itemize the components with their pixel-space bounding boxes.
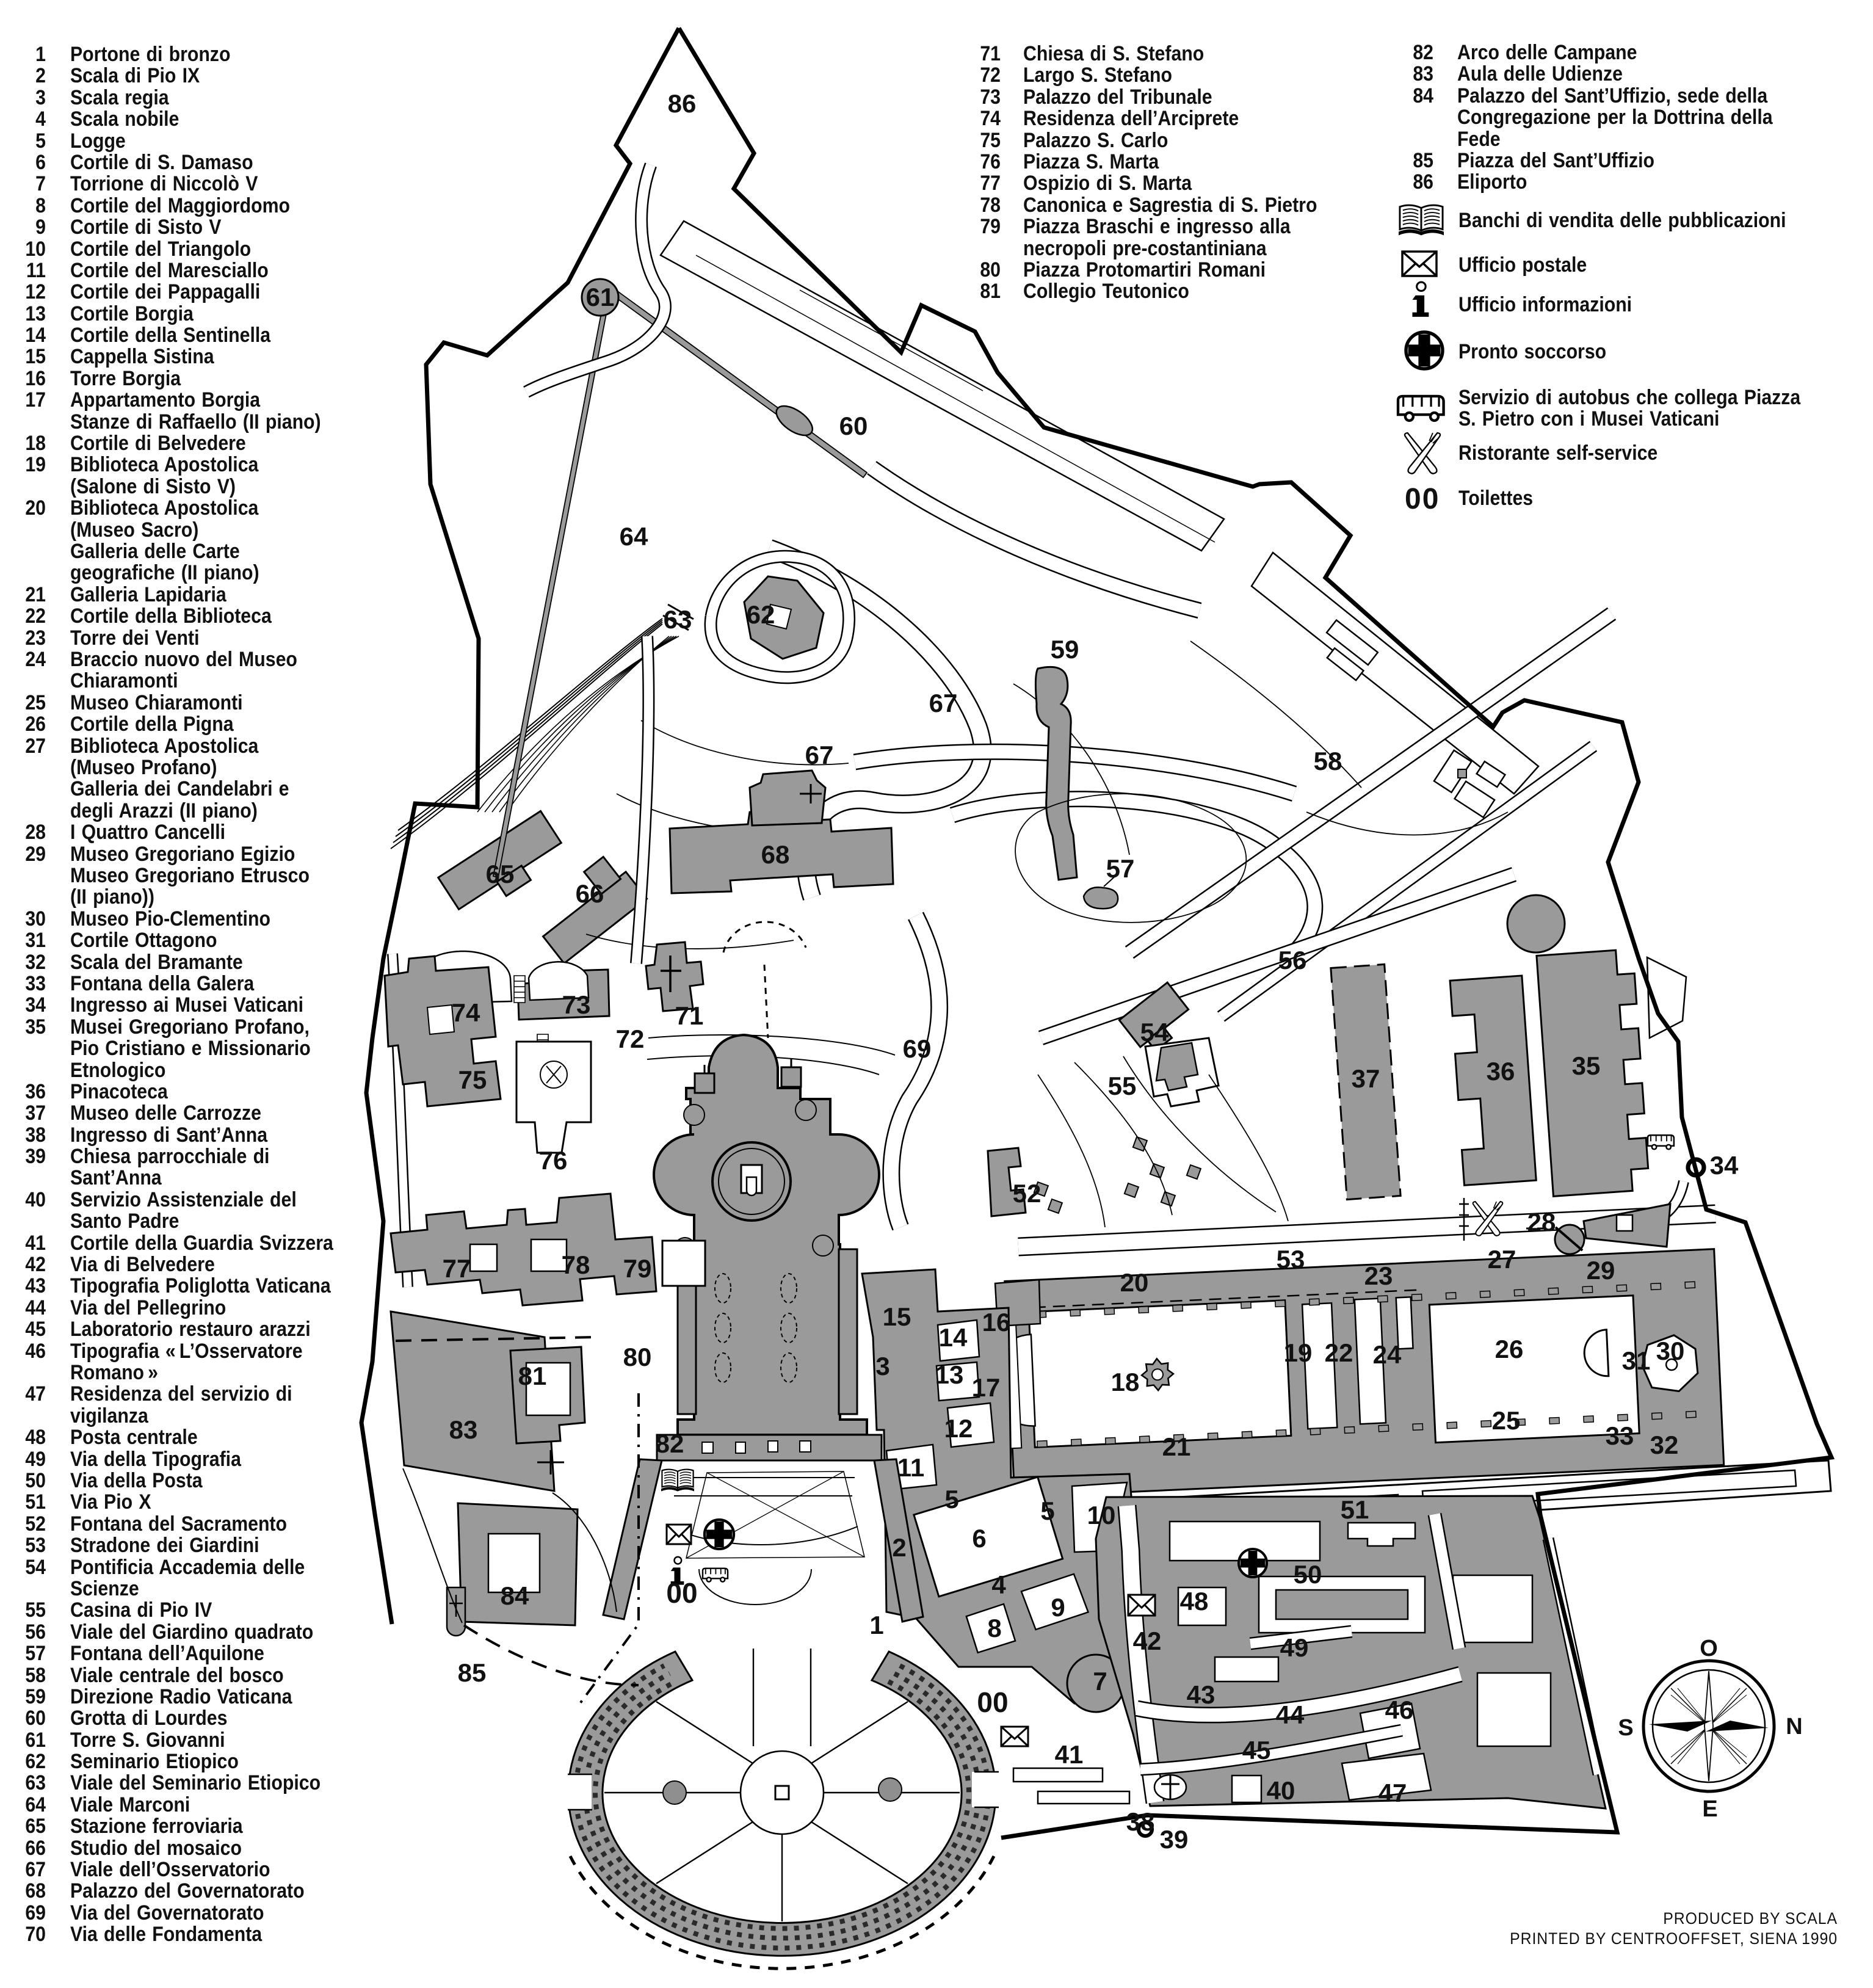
svg-text:59: 59 <box>1051 635 1079 664</box>
svg-text:64: 64 <box>620 522 648 551</box>
svg-text:7: 7 <box>1093 1667 1107 1696</box>
svg-text:18: 18 <box>1111 1368 1140 1396</box>
svg-text:40: 40 <box>1267 1776 1295 1805</box>
svg-text:6: 6 <box>972 1524 986 1553</box>
svg-text:76: 76 <box>539 1146 568 1175</box>
svg-text:57: 57 <box>1106 854 1135 883</box>
svg-text:35: 35 <box>1572 1051 1601 1080</box>
svg-text:84: 84 <box>501 1581 529 1610</box>
svg-text:62: 62 <box>747 600 775 629</box>
svg-text:5: 5 <box>1040 1496 1054 1525</box>
svg-text:34: 34 <box>1710 1151 1739 1180</box>
svg-text:20: 20 <box>1120 1268 1149 1297</box>
svg-text:2: 2 <box>892 1533 906 1562</box>
svg-text:33: 33 <box>1606 1421 1634 1450</box>
svg-text:Banchi di vendita delle pubbli: Banchi di vendita delle pubblicazioni <box>1458 208 1786 231</box>
svg-text:71: 71 <box>675 1001 704 1030</box>
svg-text:38: 38 <box>1126 1807 1155 1836</box>
svg-text:8: 8 <box>987 1614 1001 1642</box>
svg-text:58: 58 <box>1314 747 1342 775</box>
svg-text:Ufficio postale: Ufficio postale <box>1458 253 1587 276</box>
svg-text:1: 1 <box>869 1611 883 1639</box>
svg-text:67: 67 <box>805 741 834 769</box>
svg-text:41: 41 <box>1055 1740 1084 1769</box>
svg-text:PRODUCED BY SCALA: PRODUCED BY SCALA <box>1663 1910 1838 1928</box>
svg-text:44: 44 <box>1276 1700 1305 1729</box>
svg-text:42: 42 <box>1133 1627 1162 1655</box>
svg-text:25: 25 <box>1492 1406 1521 1435</box>
svg-text:43: 43 <box>1187 1680 1215 1709</box>
svg-text:66: 66 <box>576 879 604 908</box>
svg-text:21: 21 <box>1162 1432 1191 1461</box>
svg-text:26: 26 <box>1495 1335 1524 1363</box>
svg-text:00: 00 <box>1405 483 1440 515</box>
svg-text:49: 49 <box>1280 1633 1309 1662</box>
svg-text:50: 50 <box>1294 1560 1322 1589</box>
svg-text:N: N <box>1786 1714 1802 1739</box>
svg-text:S: S <box>1618 1715 1633 1741</box>
svg-text:60: 60 <box>839 412 868 440</box>
svg-text:83: 83 <box>449 1415 478 1444</box>
svg-text:73: 73 <box>562 990 591 1019</box>
svg-text:47: 47 <box>1378 1779 1407 1807</box>
svg-text:28: 28 <box>1527 1208 1556 1236</box>
svg-text:S. Pietro con i Musei Vaticani: S. Pietro con i Musei Vaticani <box>1458 407 1719 430</box>
svg-text:51: 51 <box>1341 1495 1369 1524</box>
svg-text:30: 30 <box>1656 1337 1685 1365</box>
svg-text:81: 81 <box>518 1362 547 1390</box>
svg-text:E: E <box>1702 1796 1717 1822</box>
svg-text:00: 00 <box>977 1686 1008 1718</box>
svg-text:31: 31 <box>1622 1346 1651 1375</box>
svg-text:37: 37 <box>1352 1064 1380 1093</box>
svg-text:4: 4 <box>991 1570 1006 1599</box>
svg-text:69: 69 <box>903 1034 932 1063</box>
svg-text:78: 78 <box>562 1250 590 1279</box>
svg-text:15: 15 <box>883 1302 911 1331</box>
svg-text:86: 86 <box>668 89 697 118</box>
svg-text:85: 85 <box>458 1658 487 1687</box>
svg-text:5: 5 <box>944 1485 958 1514</box>
svg-text:3: 3 <box>875 1352 889 1380</box>
svg-text:11: 11 <box>897 1453 924 1482</box>
svg-text:63: 63 <box>664 605 692 634</box>
svg-text:Toilettes: Toilettes <box>1458 486 1533 509</box>
svg-text:10: 10 <box>1087 1501 1116 1529</box>
svg-text:53: 53 <box>1277 1245 1305 1274</box>
svg-text:72: 72 <box>616 1025 645 1053</box>
svg-text:46: 46 <box>1385 1696 1414 1724</box>
svg-text:67: 67 <box>929 689 958 717</box>
svg-text:65: 65 <box>486 860 515 888</box>
svg-text:32: 32 <box>1650 1431 1679 1459</box>
svg-text:14: 14 <box>939 1323 968 1352</box>
svg-text:00: 00 <box>666 1577 697 1609</box>
svg-text:Servizio di autobus che colleg: Servizio di autobus che collega Piazza <box>1458 385 1801 408</box>
svg-text:54: 54 <box>1140 1018 1169 1047</box>
svg-text:82: 82 <box>656 1429 684 1458</box>
svg-text:27: 27 <box>1488 1245 1516 1274</box>
svg-text:O: O <box>1700 1636 1718 1661</box>
svg-text:19: 19 <box>1284 1338 1313 1367</box>
svg-text:Ufficio informazioni: Ufficio informazioni <box>1458 292 1632 316</box>
svg-text:23: 23 <box>1364 1261 1393 1290</box>
svg-text:Pronto soccorso: Pronto soccorso <box>1458 339 1606 363</box>
svg-text:74: 74 <box>452 998 480 1027</box>
svg-text:56: 56 <box>1278 946 1307 974</box>
svg-text:9: 9 <box>1051 1593 1065 1622</box>
svg-text:22: 22 <box>1325 1338 1353 1367</box>
svg-text:16: 16 <box>982 1308 1011 1337</box>
svg-text:12: 12 <box>944 1414 973 1443</box>
svg-text:80: 80 <box>623 1343 652 1371</box>
svg-text:79: 79 <box>623 1254 652 1283</box>
svg-text:68: 68 <box>761 840 790 869</box>
svg-text:Ristorante self-service: Ristorante self-service <box>1458 441 1657 464</box>
svg-text:61: 61 <box>586 283 615 311</box>
svg-text:36: 36 <box>1487 1057 1515 1086</box>
svg-text:75: 75 <box>458 1065 487 1094</box>
svg-text:55: 55 <box>1108 1072 1137 1100</box>
svg-text:29: 29 <box>1587 1256 1615 1285</box>
svg-text:77: 77 <box>443 1254 471 1283</box>
svg-text:13: 13 <box>935 1360 964 1389</box>
svg-text:24: 24 <box>1373 1340 1402 1369</box>
svg-text:45: 45 <box>1242 1736 1271 1765</box>
svg-text:52: 52 <box>1013 1179 1042 1208</box>
svg-text:PRINTED BY CENTROOFFSET, SIENA: PRINTED BY CENTROOFFSET, SIENA 1990 <box>1510 1930 1838 1948</box>
svg-text:48: 48 <box>1180 1587 1209 1616</box>
svg-text:17: 17 <box>972 1373 1001 1402</box>
svg-text:39: 39 <box>1160 1825 1189 1854</box>
